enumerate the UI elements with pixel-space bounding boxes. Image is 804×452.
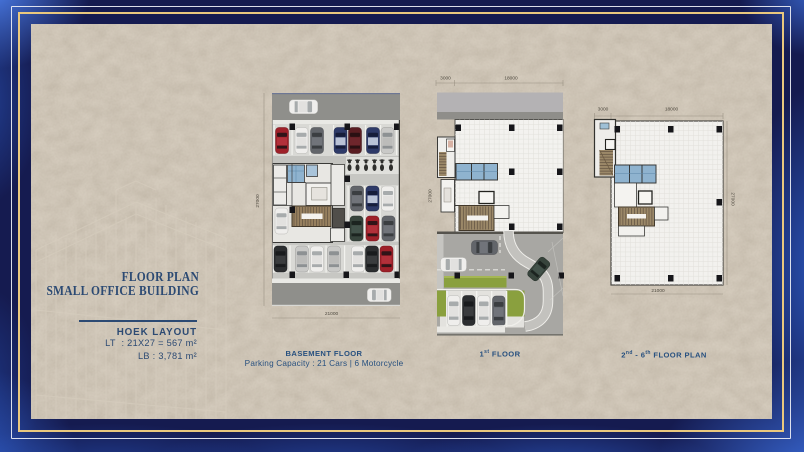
svg-text:27000: 27000 (428, 189, 434, 203)
svg-text:21000: 21000 (325, 311, 339, 317)
svg-text:3000: 3000 (440, 76, 451, 82)
svg-text:21000: 21000 (651, 288, 665, 294)
svg-text:3000: 3000 (598, 107, 609, 113)
svg-text:27000: 27000 (730, 192, 736, 206)
svg-text:18000: 18000 (504, 76, 518, 82)
svg-text:18000: 18000 (665, 107, 679, 113)
svg-text:27000: 27000 (255, 194, 261, 208)
